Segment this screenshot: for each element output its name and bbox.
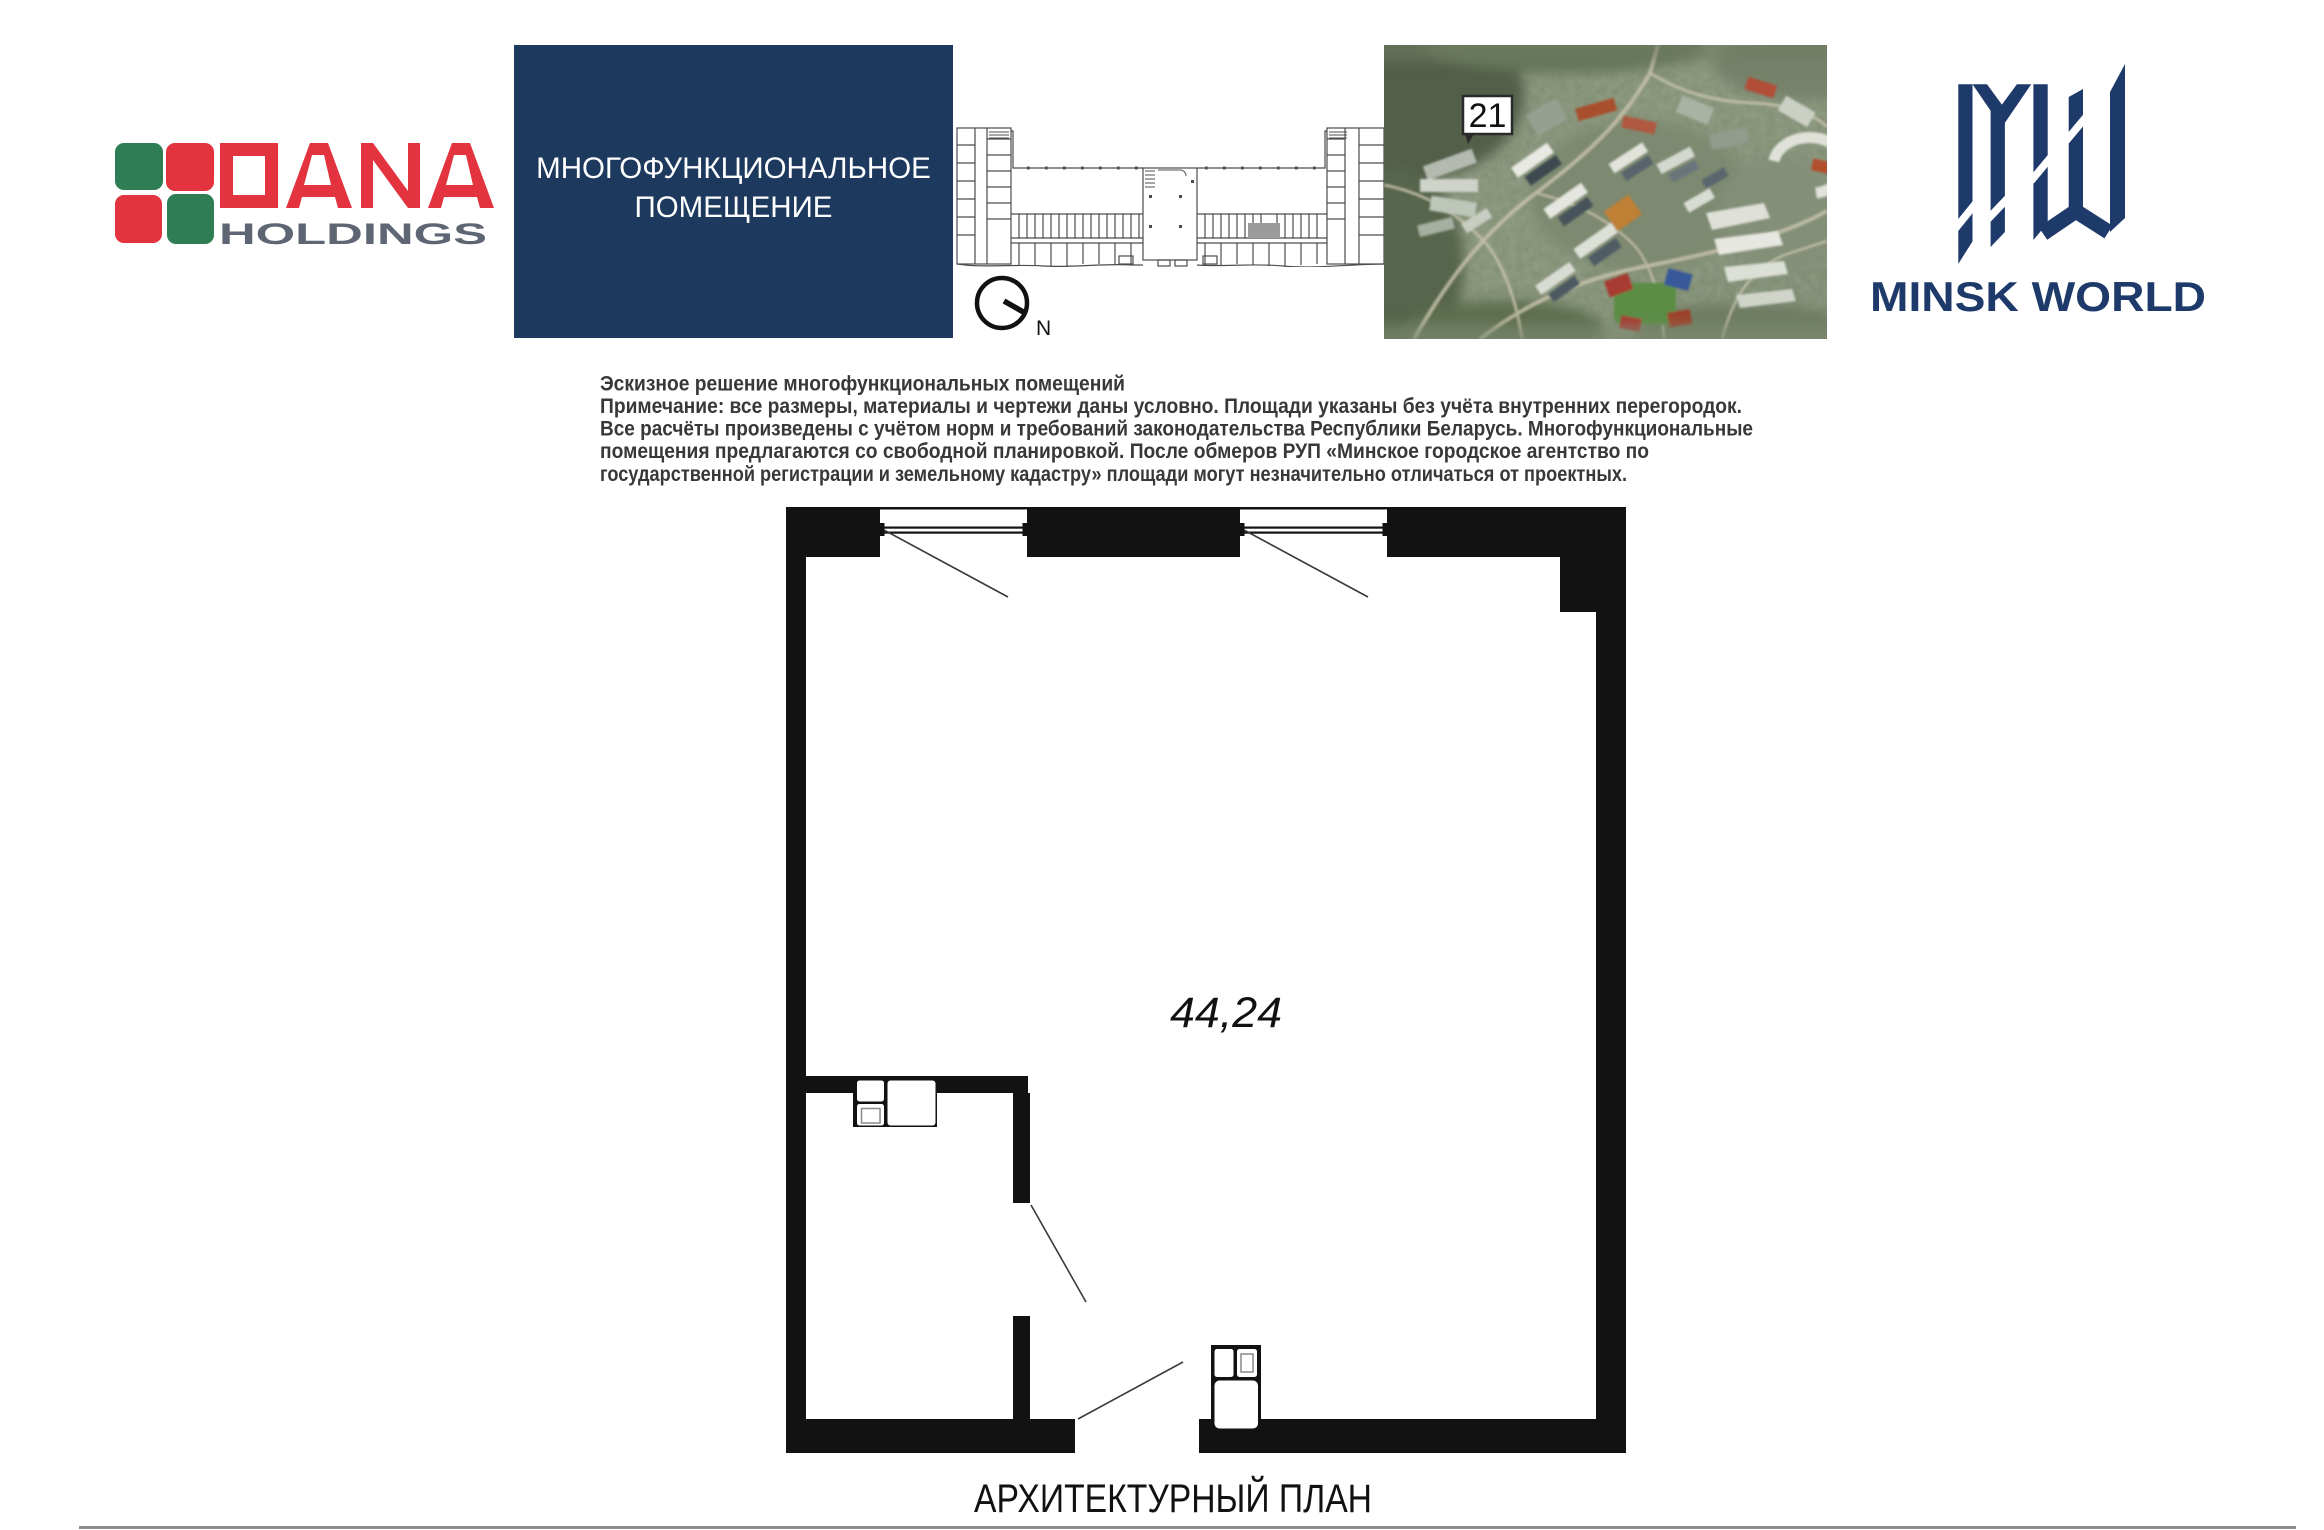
svg-text:N: N: [1036, 317, 1051, 340]
svg-text:Примечание: все размеры, матер: Примечание: все размеры, материалы и чер…: [600, 394, 1742, 418]
svg-text:государственной регистрации и: государственной регистрации и земельному…: [600, 462, 1627, 486]
svg-text:Эскизное решение многофункцион: Эскизное решение многофункциональных пом…: [600, 372, 1125, 396]
svg-text:21: 21: [1469, 97, 1507, 135]
svg-text:MINSK WORLD: MINSK WORLD: [1870, 273, 2206, 320]
svg-text:АРХИТЕКТУРНЫЙ ПЛАН: АРХИТЕКТУРНЫЙ ПЛАН: [974, 1475, 1372, 1521]
svg-text:помещения предлагаются со своб: помещения предлагаются со свободной план…: [600, 439, 1649, 463]
svg-text:Все расчёты произведены с учёт: Все расчёты произведены с учётом норм и …: [600, 417, 1753, 441]
svg-text:44,24: 44,24: [1170, 989, 1282, 1037]
svg-text:HOLDINGS: HOLDINGS: [219, 218, 487, 251]
